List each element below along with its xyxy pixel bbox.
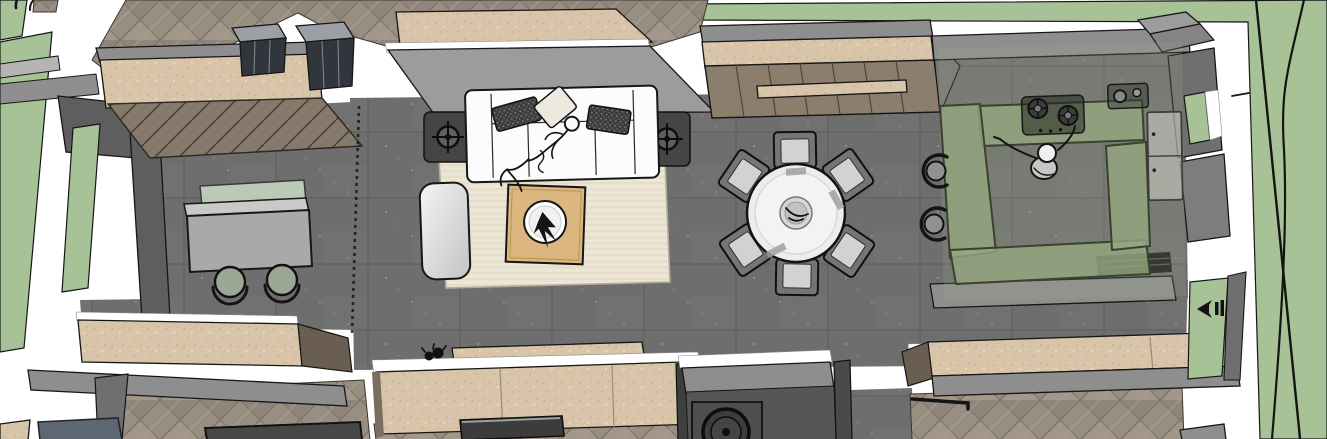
lawn-tap-strip [1188,278,1228,379]
corner-wedge [1180,424,1226,439]
kitchen [921,42,1186,302]
utility-right-wall [834,360,852,439]
lawn-left-top [0,0,27,40]
beige-corner [0,420,30,439]
throw-pillow [586,105,631,135]
floorplan-viewport[interactable] [0,0,1327,439]
deck-chunk [33,0,58,12]
dining-chair [776,259,819,296]
garden-step-line [1232,93,1249,96]
media-feature-wall [700,20,960,118]
sofa [465,83,660,192]
coffee-table [506,185,586,265]
tile-floor-hall-bottom [850,388,914,439]
refrigerator [1147,112,1183,201]
stone-wall-bottom-left [78,320,302,366]
living-room [419,83,690,288]
wall-sliver [1224,272,1246,380]
armchair [419,182,470,280]
kitchen-sink [1108,83,1149,108]
wall-end-dark [298,324,352,372]
right-wall-lower [1180,154,1230,242]
utility-room [676,350,852,439]
study-desk-front [187,210,312,272]
bed-blue [38,418,122,439]
